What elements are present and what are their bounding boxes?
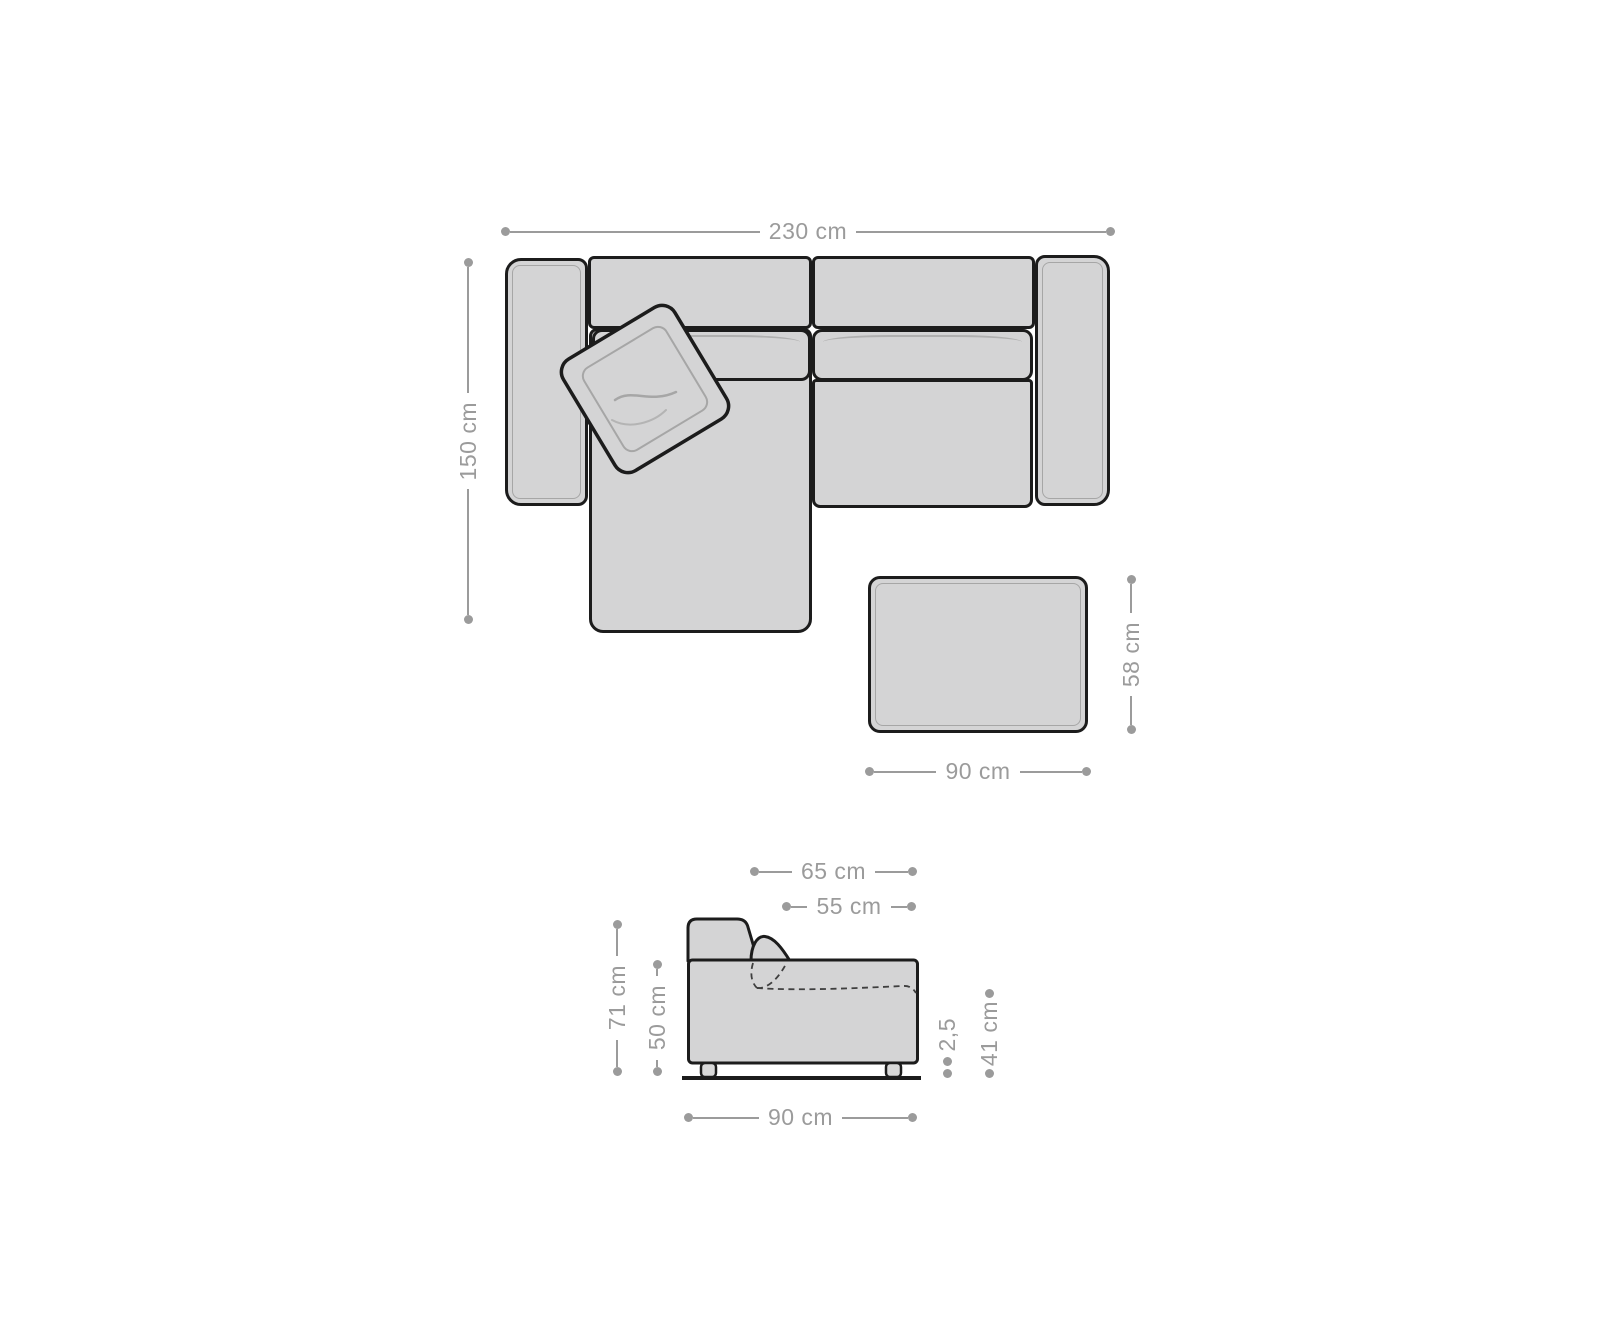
top-view-pillow <box>525 275 765 505</box>
top-view-backrest-right <box>812 256 1035 329</box>
dimension-label: 50 cm <box>644 985 671 1050</box>
dimension-dot <box>865 767 874 776</box>
dimension-label: 2,5 <box>934 1018 961 1051</box>
dimension-line <box>1130 696 1132 725</box>
dimension-label: 230 cm <box>769 218 847 245</box>
side-view-body <box>689 960 918 1063</box>
dimension-dot <box>907 902 916 911</box>
sofa-dimension-diagram: 230 cm 150 cm 58 cm 90 cm <box>0 0 1600 1333</box>
dimension-dot <box>908 867 917 876</box>
dimension-label: 90 cm <box>945 758 1010 785</box>
dimension-label: 41 cm <box>976 1001 1003 1066</box>
top-view-seat-cushion-right <box>812 329 1033 381</box>
dimension-label: 71 cm <box>604 965 631 1030</box>
side-view-pillow <box>751 936 790 961</box>
side-view-leg-left <box>701 1063 716 1077</box>
top-view-armrest-right <box>1035 255 1110 506</box>
dimension-dot <box>1082 767 1091 776</box>
side-view-backrest <box>688 919 758 961</box>
dimension-label: 150 cm <box>455 402 482 480</box>
dimension-line <box>693 1117 759 1119</box>
top-view-seat-base-right <box>812 379 1033 508</box>
dimension-side-depth-top: 65 cm <box>750 858 917 885</box>
side-view-sofa <box>665 900 935 1090</box>
dimension-dot <box>1127 725 1136 734</box>
dimension-side-seat-height: 41 cm <box>974 989 1004 1078</box>
dimension-line <box>791 906 807 908</box>
dimension-line <box>616 929 618 956</box>
dimension-topview-width: 230 cm <box>501 218 1115 245</box>
dimension-dot <box>1106 227 1115 236</box>
dimension-line <box>874 771 936 773</box>
dimension-dot <box>653 960 662 969</box>
dimension-line <box>510 231 760 233</box>
dimension-line <box>467 267 469 393</box>
dimension-dot <box>613 920 622 929</box>
dimension-line <box>656 1060 658 1067</box>
dimension-ottoman-width: 90 cm <box>865 758 1091 785</box>
dimension-dot <box>1127 575 1136 584</box>
dimension-label: 58 cm <box>1118 622 1145 687</box>
dimension-dot <box>464 615 473 624</box>
dimension-side-seat-depth: 55 cm <box>782 893 916 920</box>
dimension-dot <box>985 989 994 998</box>
dimension-line <box>875 871 908 873</box>
dimension-label: 90 cm <box>768 1104 833 1131</box>
dimension-side-overall-depth: 90 cm <box>684 1104 917 1131</box>
dimension-line <box>1020 771 1082 773</box>
dimension-label: 65 cm <box>801 858 866 885</box>
dimension-dot <box>908 1113 917 1122</box>
dimension-dot <box>985 1069 994 1078</box>
dimension-line <box>1130 584 1132 613</box>
dimension-line <box>759 871 792 873</box>
dimension-side-overall-height: 71 cm <box>602 920 632 1076</box>
side-view-leg-right <box>886 1063 901 1077</box>
dimension-dot <box>501 227 510 236</box>
dimension-line <box>616 1040 618 1067</box>
dimension-dot <box>464 258 473 267</box>
dimension-line <box>891 906 907 908</box>
ottoman <box>868 576 1088 733</box>
dimension-side-body-height: 50 cm <box>642 960 672 1076</box>
dimension-line <box>842 1117 908 1119</box>
dimension-line <box>656 969 658 976</box>
dimension-line <box>856 231 1106 233</box>
dimension-dot <box>943 1069 952 1078</box>
dimension-line <box>467 489 469 615</box>
dimension-dot <box>750 867 759 876</box>
dimension-topview-depth: 150 cm <box>453 258 483 624</box>
dimension-side-leg-height: 2,5 <box>932 1014 962 1078</box>
dimension-ottoman-height: 58 cm <box>1116 575 1146 734</box>
dimension-dot <box>613 1067 622 1076</box>
dimension-dot <box>943 1057 952 1066</box>
dimension-dot <box>782 902 791 911</box>
dimension-dot <box>653 1067 662 1076</box>
dimension-label: 55 cm <box>816 893 881 920</box>
dimension-dot <box>684 1113 693 1122</box>
